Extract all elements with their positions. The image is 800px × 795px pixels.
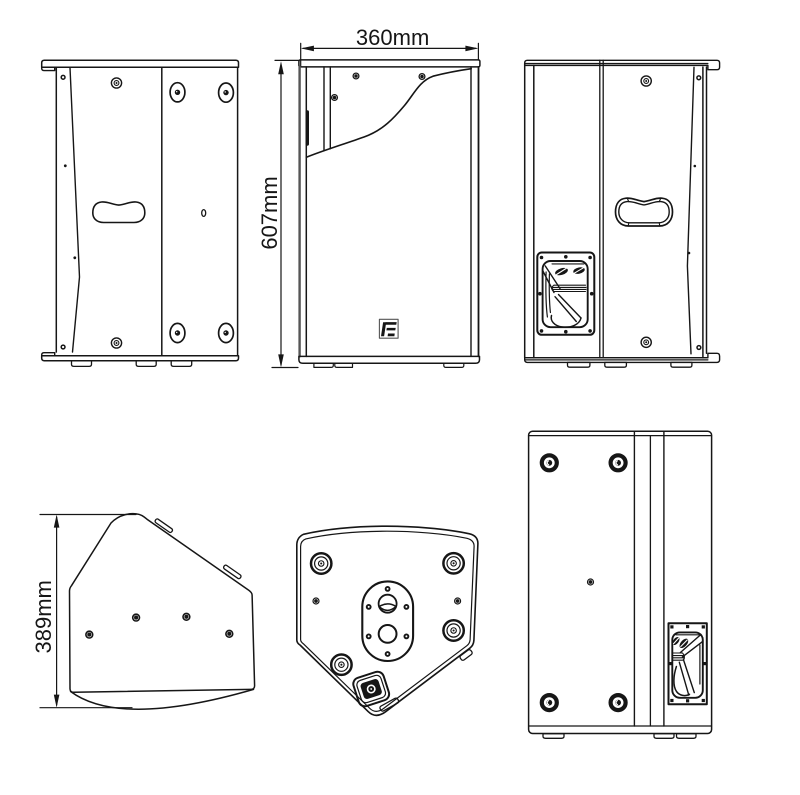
svg-text:389mm: 389mm [31,580,56,653]
svg-text:360mm: 360mm [356,25,429,50]
svg-text:607mm: 607mm [257,176,282,249]
